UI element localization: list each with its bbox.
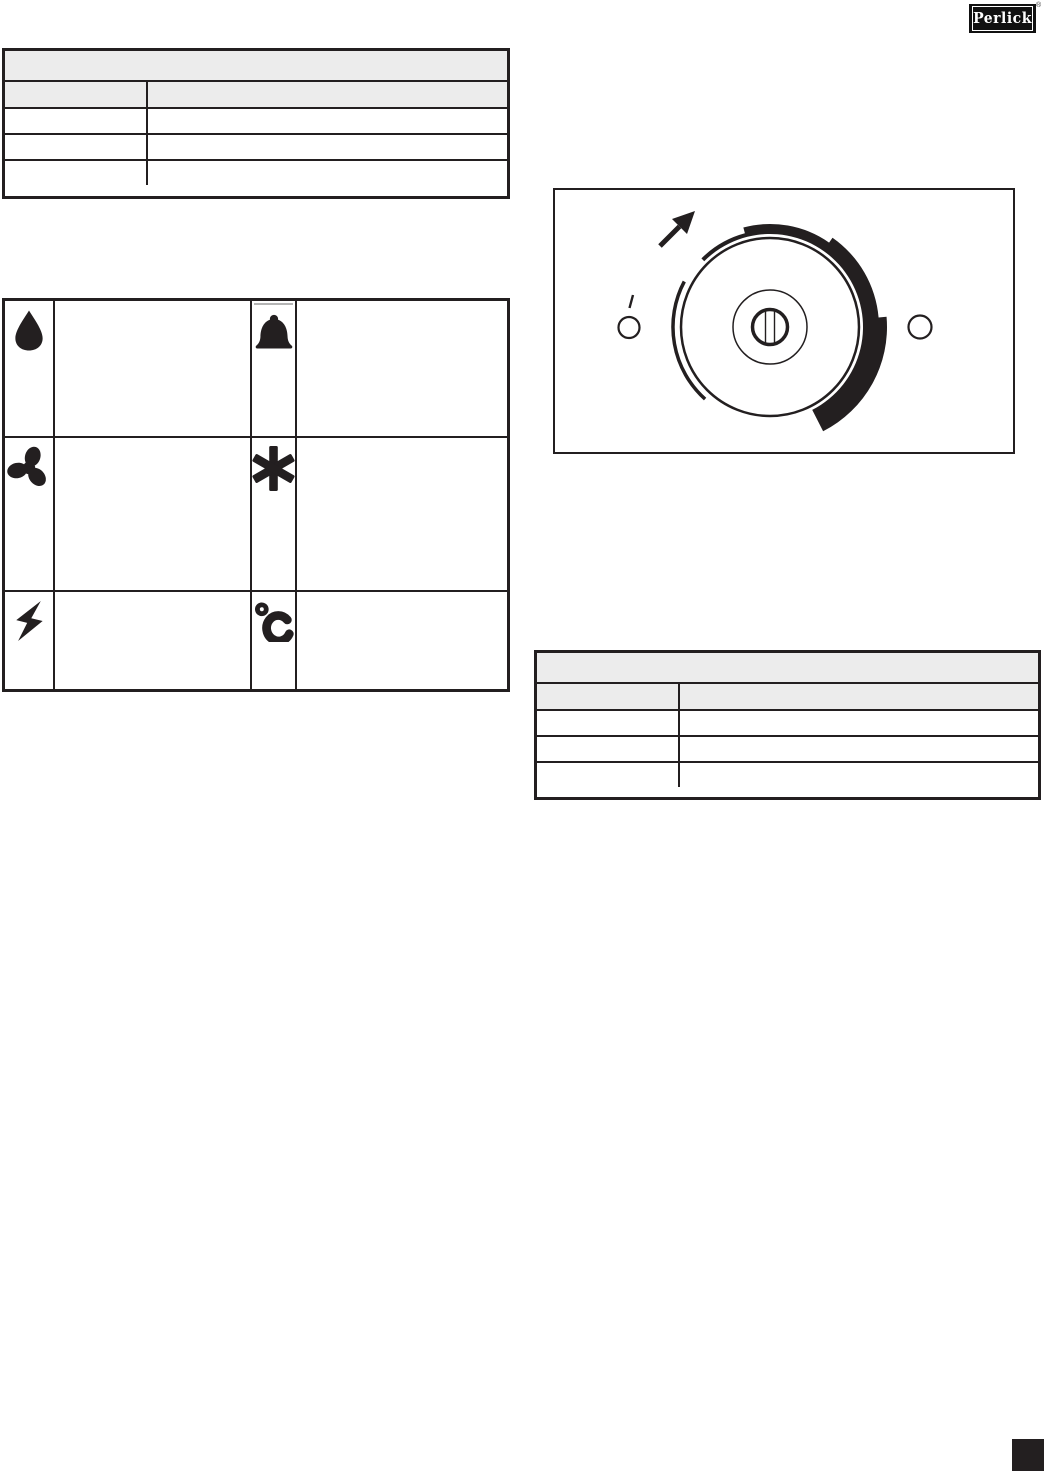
- icon-cell: [250, 301, 295, 436]
- table-row: [5, 133, 507, 159]
- logo-frame: Perlick: [972, 6, 1033, 31]
- table-cell: [5, 161, 148, 185]
- table-cell: [680, 711, 1038, 735]
- table-title-cell: [5, 51, 507, 80]
- fan-icon: [7, 444, 51, 492]
- table-title-row: [537, 653, 1038, 682]
- table-header-row: [537, 682, 1038, 709]
- icon-description: [53, 590, 250, 689]
- control-dial-figure: [553, 188, 1015, 454]
- icon-cell: [250, 590, 295, 689]
- lightning-bolt-icon: [9, 598, 49, 644]
- table-cell: [537, 737, 680, 761]
- spec-table-top-left: [2, 48, 510, 199]
- perlick-logo: Perlick: [969, 4, 1036, 33]
- icon-description: [295, 436, 507, 590]
- table-title-row: [5, 51, 507, 80]
- icon-cell: [5, 590, 53, 689]
- table-header-row: [5, 80, 507, 107]
- table-row: [537, 735, 1038, 761]
- page-corner-block: [1012, 1439, 1044, 1471]
- logo-text: Perlick: [973, 11, 1032, 26]
- table-row: [537, 761, 1038, 787]
- table-header-cell: [5, 82, 148, 107]
- spec-table-right: [534, 650, 1041, 800]
- table-row: [537, 709, 1038, 735]
- registered-trademark: ®: [1036, 2, 1041, 9]
- table-row: [5, 107, 507, 133]
- snowflake-icon: [252, 444, 295, 493]
- icon-cell: [250, 436, 295, 590]
- cell-artifact-line: [254, 303, 293, 305]
- icon-description: [53, 436, 250, 590]
- temperature-celsius-icon: [253, 598, 295, 642]
- table-cell: [5, 109, 148, 133]
- dial-figure-canvas: [553, 188, 1015, 454]
- table-title-cell: [537, 653, 1038, 682]
- icon-description: [295, 590, 507, 689]
- table-header-cell: [148, 82, 507, 107]
- table-cell: [680, 737, 1038, 761]
- dial-hub: [733, 290, 807, 364]
- icon-description: [295, 301, 507, 436]
- table-cell: [148, 109, 507, 133]
- icon-legend-table: [2, 298, 510, 692]
- table-header-cell: [680, 684, 1038, 709]
- table-cell: [148, 161, 507, 185]
- table-header-cell: [537, 684, 680, 709]
- table-cell: [537, 711, 680, 735]
- table-cell: [148, 135, 507, 159]
- table-cell: [680, 763, 1038, 787]
- bell-icon: [253, 311, 295, 357]
- table-row: [5, 159, 507, 185]
- icon-description: [53, 301, 250, 436]
- table-cell: [537, 763, 680, 787]
- water-drop-icon: [9, 307, 49, 354]
- manual-page: Perlick ®: [0, 0, 1044, 1471]
- table-cell: [5, 135, 148, 159]
- icon-cell: [5, 436, 53, 590]
- icon-cell: [5, 301, 53, 436]
